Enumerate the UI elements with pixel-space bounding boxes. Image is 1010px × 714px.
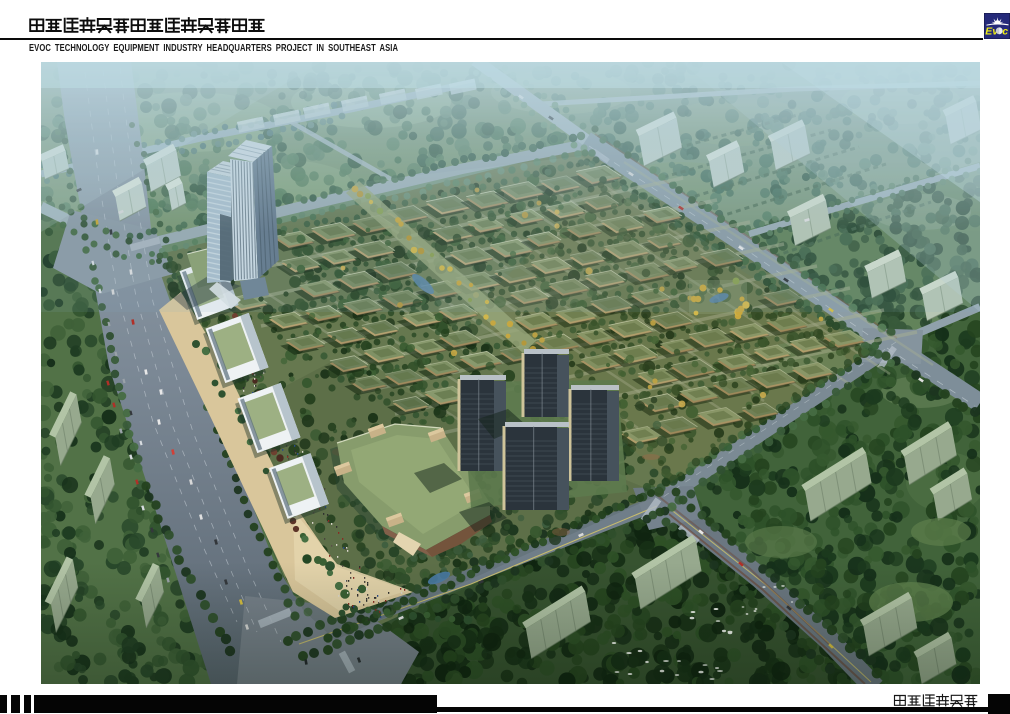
svg-text:c: c (1002, 26, 1008, 38)
